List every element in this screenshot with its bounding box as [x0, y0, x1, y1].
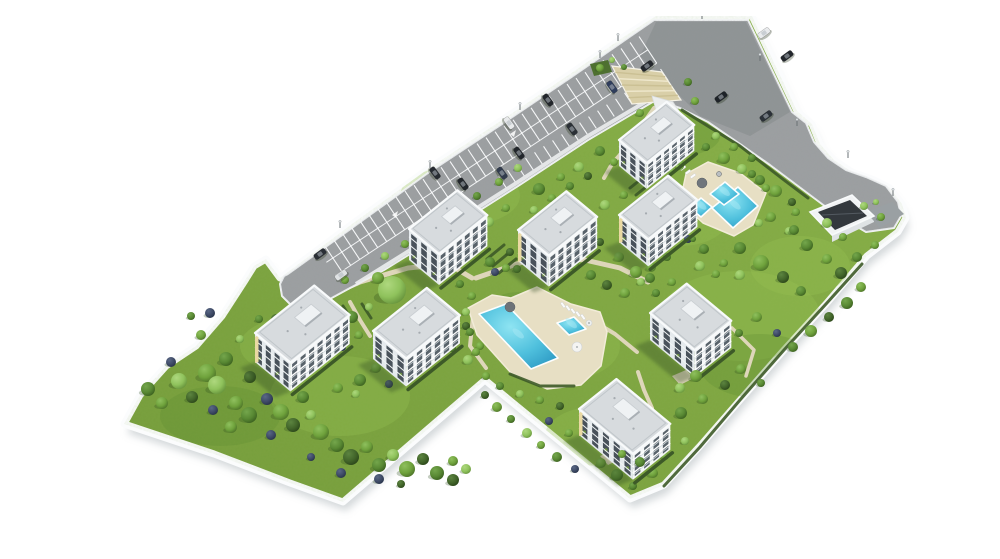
parking-stall-line: [576, 39, 584, 51]
tree: [166, 357, 176, 367]
parking-stall-line: [459, 116, 467, 128]
tree: [186, 391, 198, 403]
patio-table: [505, 302, 515, 312]
lamp-head: [339, 220, 341, 222]
tree: [333, 383, 343, 393]
tree: [602, 280, 612, 290]
roof-vent: [414, 307, 416, 309]
tree: [636, 109, 644, 117]
roof-vent: [300, 306, 302, 308]
parking-stall-line: [324, 205, 332, 217]
tree: [681, 437, 689, 445]
tree: [630, 266, 642, 278]
roof-vent: [450, 230, 452, 232]
tree: [205, 308, 215, 318]
lamp-head: [519, 102, 521, 104]
tree: [668, 278, 676, 286]
tree: [466, 328, 474, 336]
tree: [336, 468, 346, 478]
roof-vent: [682, 300, 684, 302]
tree: [770, 185, 782, 197]
parking-stall-line: [549, 57, 557, 69]
tree: [537, 441, 545, 449]
tree: [610, 158, 618, 166]
tree: [698, 394, 708, 404]
stair-step: [625, 91, 674, 92]
roof-vent: [304, 333, 306, 335]
tree: [430, 466, 444, 480]
tree: [600, 200, 610, 210]
tree: [399, 461, 415, 477]
roof-vent: [418, 332, 420, 334]
tree: [637, 278, 645, 286]
tree: [734, 242, 746, 254]
parking-stall-line: [603, 21, 611, 33]
tree: [352, 390, 360, 398]
entrance-accent: [619, 217, 623, 243]
tree: [735, 329, 743, 337]
tree: [482, 372, 490, 380]
stair-step: [622, 85, 672, 86]
tree: [306, 410, 316, 420]
tree: [841, 297, 853, 309]
tree: [381, 252, 389, 260]
tree: [208, 405, 218, 415]
tree: [208, 376, 226, 394]
tree: [690, 370, 702, 382]
tree: [652, 289, 660, 297]
tree: [718, 152, 730, 164]
grass-shade: [160, 386, 280, 446]
lamp-head: [429, 160, 431, 162]
tree: [873, 199, 879, 205]
tree: [463, 355, 473, 365]
tree: [789, 225, 799, 235]
tree: [492, 402, 502, 412]
tree: [620, 288, 630, 298]
tree: [691, 97, 699, 105]
tree: [596, 64, 604, 72]
parasol-pole: [588, 322, 590, 324]
tree: [481, 391, 489, 399]
tree: [856, 282, 866, 292]
tree: [805, 325, 817, 337]
tree: [571, 465, 579, 473]
tree: [720, 380, 730, 390]
parking-stall-line: [279, 235, 287, 247]
tree: [496, 382, 504, 390]
tree: [755, 219, 763, 227]
tree: [621, 64, 627, 70]
tree: [835, 267, 847, 279]
parking-stall-line: [315, 211, 323, 223]
tree: [720, 259, 728, 267]
lamp-head: [759, 53, 761, 55]
parking-stall-line: [495, 92, 503, 104]
tree: [266, 430, 276, 440]
parking-stall-line: [288, 229, 296, 241]
roof-vent: [446, 207, 448, 209]
roof-vent: [645, 212, 647, 214]
tree: [361, 441, 373, 453]
tree: [447, 474, 459, 486]
parking-stall-line: [612, 16, 620, 27]
tree: [877, 213, 885, 221]
entrance-accent: [579, 411, 583, 436]
tree: [372, 272, 384, 284]
tree: [307, 453, 315, 461]
tree: [695, 261, 705, 271]
tree: [273, 404, 289, 420]
parking-stall-line: [423, 140, 431, 152]
tree: [762, 184, 770, 192]
roof-vent: [632, 428, 634, 430]
roof-vent: [696, 326, 698, 328]
patio-table: [697, 178, 707, 188]
entrance-accent: [255, 335, 259, 363]
tree: [860, 202, 868, 210]
tree: [595, 146, 605, 156]
tree: [557, 173, 565, 181]
patio-table: [717, 172, 722, 177]
tree: [736, 364, 746, 374]
tree: [462, 308, 470, 316]
roof-vent: [402, 329, 404, 331]
tree: [530, 206, 538, 214]
tree: [516, 390, 524, 398]
tree: [397, 480, 405, 488]
tree: [748, 170, 756, 178]
tree: [330, 438, 344, 452]
tree: [777, 271, 789, 283]
tree: [372, 458, 386, 472]
roof-vent: [656, 193, 658, 195]
tree: [556, 402, 564, 410]
tree: [343, 449, 359, 465]
roof-vent: [435, 227, 437, 229]
tree: [361, 264, 369, 272]
tree: [468, 292, 476, 300]
parking-stall-line: [405, 152, 413, 164]
tree: [584, 172, 592, 180]
tree: [822, 254, 832, 264]
tree: [417, 453, 429, 465]
tree: [533, 183, 545, 195]
roof-vent: [655, 118, 657, 120]
tree: [448, 456, 458, 466]
tree: [502, 204, 510, 212]
tree: [609, 57, 615, 63]
parking-stall-line: [567, 45, 575, 57]
tree: [757, 379, 765, 387]
tree: [156, 397, 168, 409]
parking-stall-line: [351, 187, 359, 199]
tree: [506, 248, 514, 256]
parking-stall-line: [396, 158, 404, 170]
parking-stall-line: [432, 134, 440, 146]
parking-stall-line: [306, 217, 314, 229]
roof-vent: [644, 137, 646, 139]
tree: [737, 164, 747, 174]
tree: [261, 393, 273, 405]
tree: [485, 257, 495, 267]
lamp-head: [599, 50, 601, 52]
tree: [522, 428, 532, 438]
lamp-head: [892, 188, 894, 190]
site-plan-render: Aerial 3D site plan rendering of a resid…: [40, 16, 1000, 543]
parking-stall-line: [333, 199, 341, 211]
tree: [852, 252, 862, 262]
tree: [871, 241, 879, 249]
roof-vent: [544, 228, 546, 230]
tree: [565, 429, 573, 437]
parking-stall-line: [378, 170, 386, 182]
tree: [225, 421, 237, 433]
tree: [620, 191, 628, 199]
tree: [229, 396, 243, 410]
parking-stall-line: [513, 80, 521, 92]
tree: [596, 238, 604, 246]
tree: [241, 407, 257, 423]
parking-stall-line: [621, 16, 629, 21]
roof-vent: [287, 330, 289, 332]
tree: [675, 407, 687, 419]
parking-stall-line: [540, 62, 548, 74]
roof-vent: [555, 208, 557, 210]
tree: [839, 233, 847, 241]
roof-vent: [612, 418, 614, 420]
tree: [374, 474, 384, 484]
roof-vent: [658, 139, 660, 141]
tree: [387, 449, 399, 461]
parking-stall-line: [504, 86, 512, 98]
tree: [187, 312, 195, 320]
tree: [748, 154, 756, 162]
tree: [645, 273, 655, 283]
tree: [766, 212, 776, 222]
tree: [502, 264, 510, 272]
tree: [536, 396, 544, 404]
tree: [675, 383, 685, 393]
tree: [552, 452, 562, 462]
roof-vent: [613, 397, 615, 399]
scene-svg: [40, 16, 1000, 543]
parking-stall-line: [387, 164, 395, 176]
tree: [171, 373, 187, 389]
tree: [755, 175, 765, 185]
tree: [684, 78, 692, 86]
tree: [473, 192, 481, 200]
tree: [824, 312, 834, 322]
tree: [507, 415, 515, 423]
parking-stall-line: [531, 68, 539, 80]
car: [779, 49, 796, 65]
tree: [219, 352, 233, 366]
tree: [822, 218, 832, 228]
tree: [699, 244, 709, 254]
tree: [236, 335, 244, 343]
parasol-pole: [576, 346, 578, 348]
tree: [773, 329, 781, 337]
tree: [735, 270, 745, 280]
tree: [712, 132, 720, 140]
parking-stall-line: [522, 74, 530, 86]
parking-stall-line: [450, 122, 458, 134]
tree: [753, 255, 769, 271]
tree: [472, 348, 480, 356]
tree: [255, 315, 263, 323]
tree: [514, 164, 522, 172]
tree: [141, 382, 155, 396]
tree: [545, 417, 553, 425]
roof-vent: [679, 319, 681, 321]
parking-stall-line: [585, 33, 593, 45]
tree: [313, 424, 329, 440]
tree: [788, 342, 798, 352]
parking-stall-line: [360, 181, 368, 193]
tree: [712, 270, 720, 278]
tree: [788, 198, 796, 206]
tree: [796, 286, 806, 296]
tree: [635, 457, 645, 467]
tree: [801, 239, 813, 251]
parking-stall-line: [414, 146, 422, 158]
tree: [461, 464, 471, 474]
parking-stall-line: [468, 110, 476, 122]
tree: [355, 331, 363, 339]
tree: [491, 268, 499, 276]
tree: [702, 143, 710, 151]
parking-stall-line: [594, 27, 602, 39]
tree: [792, 208, 800, 216]
tree: [618, 450, 626, 458]
roof-vent: [559, 231, 561, 233]
tree: [354, 374, 366, 386]
tree: [752, 312, 762, 322]
tree: [566, 182, 574, 190]
lamp-head: [796, 118, 798, 120]
entrance-accent: [518, 232, 522, 262]
lamp-head: [617, 33, 619, 35]
tree: [574, 162, 584, 172]
tree: [365, 303, 373, 311]
tree: [401, 240, 409, 248]
parking-stall-line: [486, 98, 494, 110]
parking-stall-line: [477, 104, 485, 116]
parking-stall-line: [369, 175, 377, 187]
parking-stall-line: [342, 193, 350, 205]
tree: [297, 391, 309, 403]
parking-stall-line: [297, 223, 305, 235]
lamp-head: [847, 150, 849, 152]
parking-stall-line: [441, 128, 449, 140]
parking-stall-line: [558, 51, 566, 63]
roof-vent: [660, 215, 662, 217]
tree: [456, 280, 464, 288]
tree: [286, 418, 300, 432]
tree: [730, 143, 738, 151]
tree: [586, 270, 596, 280]
tree: [196, 330, 206, 340]
